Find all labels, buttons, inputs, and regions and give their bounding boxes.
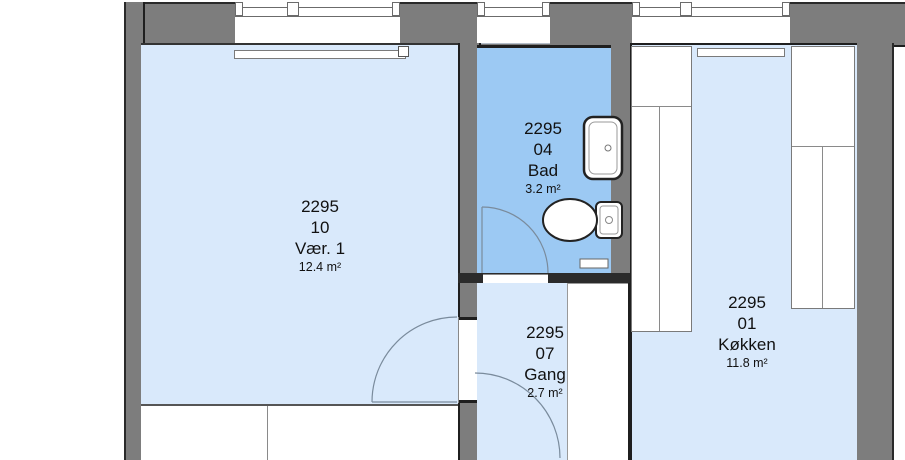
radiator-kitchen xyxy=(697,48,785,57)
window-jamb xyxy=(477,2,485,16)
window-frame-line xyxy=(235,16,400,17)
window-frame-line xyxy=(632,16,790,17)
room-number: 2295 xyxy=(485,322,605,343)
window-kitchen xyxy=(632,2,790,44)
room-number: 2295 xyxy=(483,118,603,139)
wardrobe-room1 xyxy=(141,404,460,460)
room-unit: 04 xyxy=(483,139,603,160)
counter-divider-line xyxy=(632,106,691,107)
window-mullion xyxy=(287,2,299,16)
wardrobe-divider-line xyxy=(267,406,268,460)
window-mullion xyxy=(680,2,692,16)
room-unit: 07 xyxy=(485,343,605,364)
room-unit: 10 xyxy=(250,217,390,238)
window-frame-line xyxy=(235,7,400,8)
window-bath xyxy=(477,2,550,44)
window-jamb xyxy=(542,2,550,16)
wall-right xyxy=(855,43,894,460)
room-label-kokken: 2295 01 Køkken 11.8 m² xyxy=(677,292,817,371)
room-number: 2295 xyxy=(250,196,390,217)
window-frame-line xyxy=(632,7,790,8)
counter-divider-line xyxy=(659,106,660,331)
radiator-room1 xyxy=(234,50,406,59)
room-area: 11.8 m² xyxy=(677,355,817,371)
floor-plan: 2295 10 Vær. 1 12.4 m² 2295 04 Bad 3.2 m… xyxy=(0,0,905,460)
window-room1 xyxy=(235,2,400,44)
room-area: 3.2 m² xyxy=(483,181,603,197)
column-symbol xyxy=(398,46,409,57)
window-jamb xyxy=(632,2,640,16)
counter-divider-line xyxy=(792,146,854,147)
kitchen-counter-left xyxy=(631,46,692,332)
room-label-bad: 2295 04 Bad 3.2 m² xyxy=(483,118,603,197)
room-label-gang: 2295 07 Gang 2.7 m² xyxy=(485,322,605,401)
kitchen-counter-right xyxy=(791,46,855,309)
room-name: Bad xyxy=(483,160,603,181)
wall-cap xyxy=(459,317,478,320)
room-label-vaer1: 2295 10 Vær. 1 12.4 m² xyxy=(250,196,390,275)
window-jamb xyxy=(392,2,400,16)
counter-divider-line xyxy=(822,146,823,308)
wall-bath-kitchen xyxy=(611,43,632,283)
window-frame-line xyxy=(477,16,550,17)
window-jamb xyxy=(235,2,243,16)
room-name: Vær. 1 xyxy=(250,238,390,259)
room-name: Gang xyxy=(485,364,605,385)
room-unit: 01 xyxy=(677,313,817,334)
window-jamb xyxy=(782,2,790,16)
room-name: Køkken xyxy=(677,334,817,355)
door-opening-room1 xyxy=(458,317,479,403)
room-number: 2295 xyxy=(677,292,817,313)
room-area: 12.4 m² xyxy=(250,259,390,275)
room-area: 2.7 m² xyxy=(485,385,605,401)
window-frame-line xyxy=(477,7,550,8)
